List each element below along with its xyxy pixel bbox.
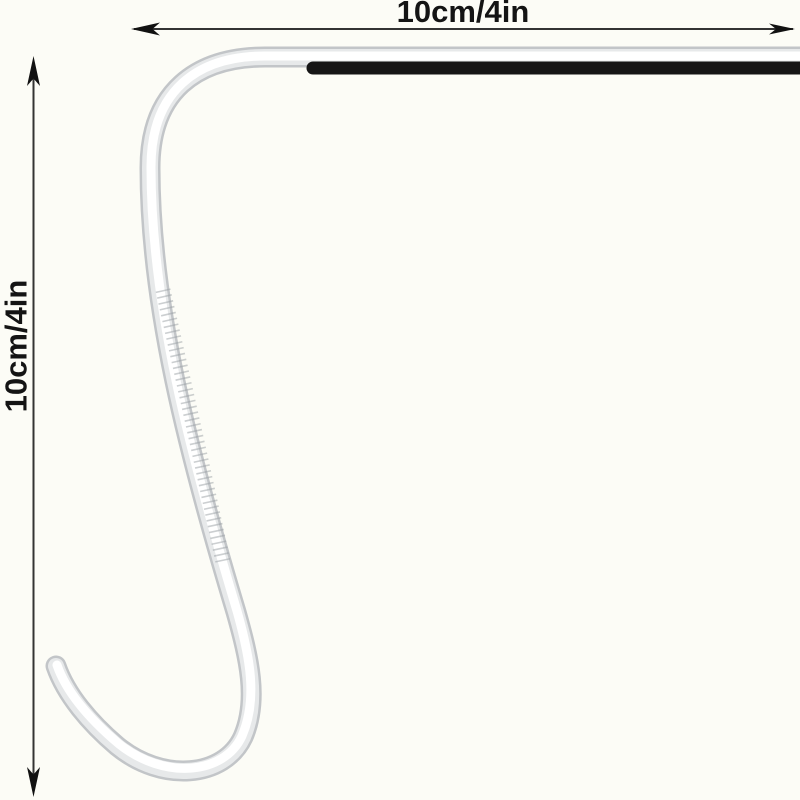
height-dimension-label: 10cm/4in <box>1 280 32 413</box>
background <box>0 0 800 800</box>
width-dimension-label: 10cm/4in <box>397 0 530 27</box>
hook-diagram-canvas <box>0 0 800 800</box>
product-dimension-diagram: 10cm/4in 10cm/4in <box>0 0 800 800</box>
